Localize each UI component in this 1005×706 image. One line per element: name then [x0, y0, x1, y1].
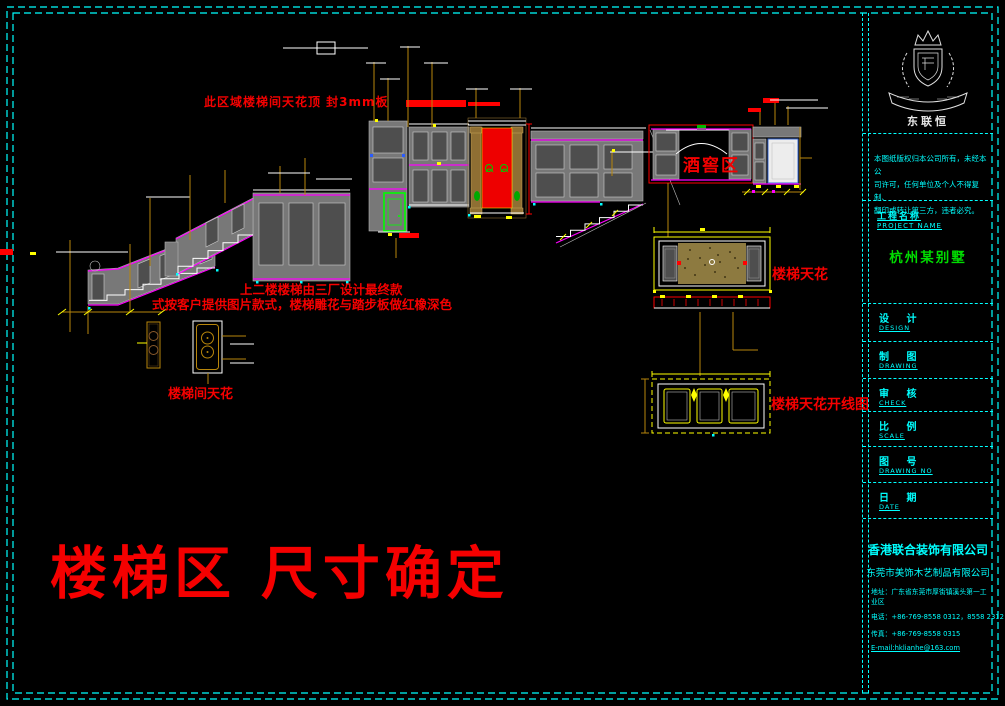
- wine-area-label: 酒窖区: [683, 151, 740, 176]
- stairwell-ceiling-label: 楼梯间天花: [168, 383, 233, 402]
- row-check-en: CHECK: [879, 399, 906, 407]
- white-door: [768, 139, 798, 183]
- red-door-elevation: [466, 88, 532, 219]
- row-design-label: 设 计: [879, 310, 923, 325]
- stair-ceiling-plan: [654, 227, 770, 376]
- project-label: 工程名称: [877, 209, 921, 222]
- stairwell-ceiling-plans: [137, 321, 254, 384]
- cad-viewport: 此区域楼梯间天花顶 封3mm板 上二楼楼梯由三厂设计最终款 式按客户提供图片款式…: [0, 0, 1005, 706]
- stair-ceiling-label: 楼梯天花: [772, 264, 828, 284]
- title-block: 东联恒 本图纸版权归本公司所有，未经本公 司许可，任何单位及个人不得复制、 翻印…: [862, 13, 993, 693]
- stair-note-line2: 式按客户提供图片款式，楼梯雕花与踏步板做红橡深色: [152, 294, 452, 313]
- project-name: 杭州某别墅: [863, 246, 993, 266]
- row-date-label: 日 期: [879, 489, 923, 504]
- copyright-note: 本图纸版权归本公司所有，未经本公 司许可，任何单位及个人不得复制、 翻印或转让第…: [874, 152, 993, 217]
- left-red-mark: [0, 249, 13, 255]
- logo-text: 东联恒: [863, 113, 993, 129]
- company-subname: 东莞市美饰木艺制品有限公司: [863, 565, 993, 579]
- stair-ceiling-layout-plan: [641, 371, 770, 437]
- company-name: 香港联合装饰有限公司: [863, 541, 993, 558]
- project-label-en: PROJECT NAME: [877, 222, 942, 230]
- row-drawing-label: 制 图: [879, 348, 923, 363]
- row-drawingno-label: 图 号: [879, 453, 923, 468]
- company-email: E-mail:hklianhe@163.com: [871, 644, 960, 652]
- ceiling-note: 此区域楼梯间天花顶 封3mm板: [204, 93, 389, 110]
- stair-elevation-mid: [165, 158, 352, 284]
- row-check-label: 审 核: [879, 385, 923, 400]
- row-scale-en: SCALE: [879, 432, 905, 440]
- row-drawing-en: DRAWING: [879, 362, 918, 370]
- row-scale-label: 比 例: [879, 418, 923, 433]
- row-design-en: DESIGN: [879, 324, 910, 332]
- company-crest-icon: [883, 27, 973, 123]
- company-fax: 传真：+86-769-8558 0315: [871, 628, 960, 638]
- company-address: 地址：广东省东莞市厚街镇溪头第一工业区: [871, 587, 987, 607]
- company-phone: 电话：+86-769-8558 0312，8558 2312: [871, 611, 1004, 621]
- page-title: 楼梯区 尺寸确定: [50, 528, 509, 610]
- red-revision-bar: [406, 100, 466, 107]
- row-drawingno-en: DRAWING NO: [879, 467, 933, 475]
- row-date-en: DATE: [879, 503, 900, 511]
- stair-ceiling-layout-label: 楼梯天花开线图: [771, 394, 869, 414]
